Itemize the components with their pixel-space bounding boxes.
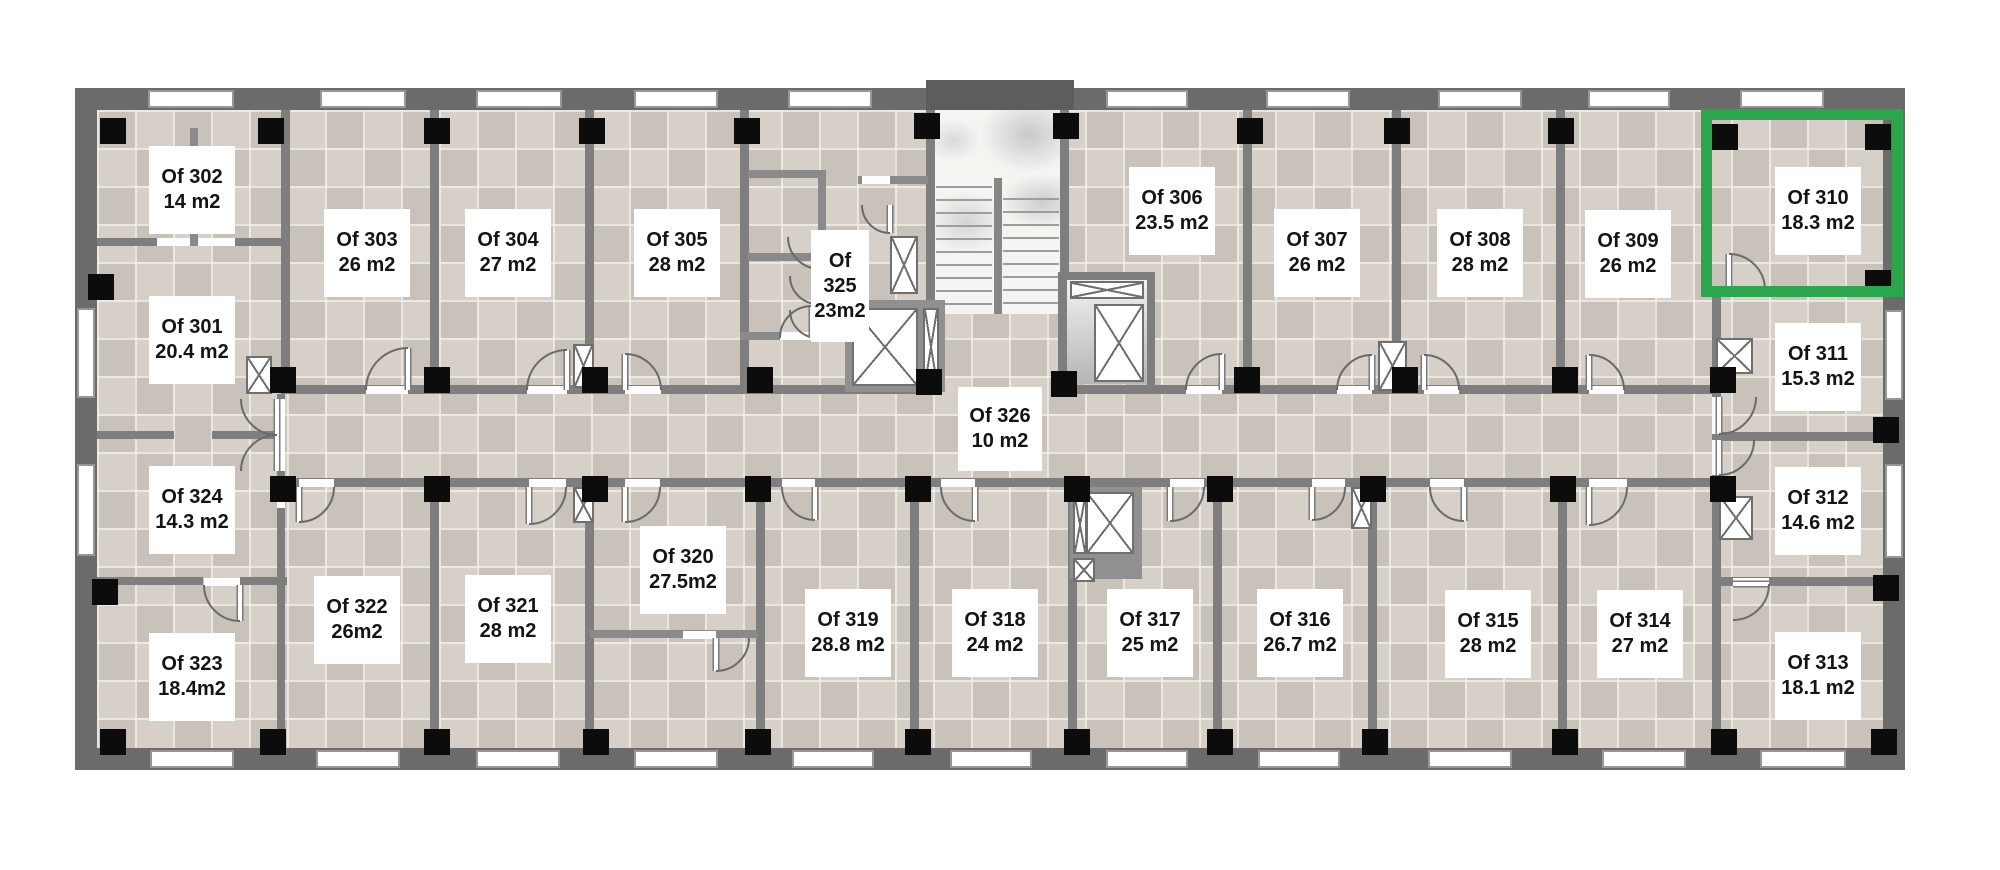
window	[634, 750, 718, 768]
stair-flight	[1003, 198, 1059, 312]
window	[1106, 90, 1188, 108]
wall	[277, 487, 285, 750]
door-opening	[780, 332, 812, 340]
room-label-304: Of 30427 m2	[465, 209, 551, 297]
wall	[756, 487, 765, 748]
room-label-text: 28.8 m2	[811, 633, 884, 658]
window	[950, 750, 1032, 768]
room-label-text: Of 309	[1597, 229, 1658, 254]
room-label-text: 26 m2	[339, 253, 396, 278]
shaft-duct	[890, 236, 918, 294]
room-label-315: Of 31528 m2	[1445, 590, 1531, 678]
room-label-text: 28 m2	[1460, 634, 1517, 659]
elevator	[1086, 492, 1134, 554]
room-label-text: Of 313	[1787, 651, 1848, 676]
door-opening	[1430, 479, 1464, 487]
door-opening	[1712, 440, 1721, 475]
room-label-text: 325	[823, 274, 856, 299]
column	[1207, 476, 1233, 502]
column	[916, 369, 942, 395]
room-label-text: 25 m2	[1122, 633, 1179, 658]
door-opening	[1337, 386, 1372, 394]
window	[150, 750, 234, 768]
column	[745, 476, 771, 502]
room-label-text: 14 m2	[164, 190, 221, 215]
door-opening	[527, 386, 567, 394]
window	[316, 750, 400, 768]
column	[734, 118, 760, 144]
column	[745, 729, 771, 755]
column	[905, 476, 931, 502]
window	[1428, 750, 1512, 768]
wall	[97, 238, 157, 246]
column	[1548, 118, 1574, 144]
column	[260, 729, 286, 755]
window	[476, 90, 562, 108]
wall	[430, 110, 439, 394]
door-opening	[1424, 386, 1459, 394]
door-opening	[277, 399, 285, 471]
elevator	[1073, 558, 1095, 582]
room-label-316: Of 31626.7 m2	[1257, 589, 1343, 677]
column	[582, 476, 608, 502]
room-label-text: 14.3 m2	[155, 510, 228, 535]
column	[1064, 476, 1090, 502]
window	[1106, 750, 1188, 768]
column	[905, 729, 931, 755]
room-label-326: Of 32610 m2	[958, 387, 1042, 471]
column	[583, 729, 609, 755]
window	[1885, 310, 1903, 400]
room-label-323: Of 32318.4m2	[149, 633, 235, 721]
door-opening	[782, 479, 815, 487]
door-opening	[1170, 479, 1204, 487]
room-label-text: Of 304	[477, 228, 538, 253]
room-label-text: Of 306	[1141, 186, 1202, 211]
door-opening	[625, 386, 661, 394]
room-label-text: 27.5m2	[649, 570, 717, 595]
wall	[1058, 272, 1067, 385]
column	[1710, 476, 1736, 502]
room-label-text: 28 m2	[1452, 253, 1509, 278]
room-label-text: 28 m2	[649, 253, 706, 278]
column	[1051, 371, 1077, 397]
wall	[281, 110, 290, 394]
room-label-text: Of 315	[1457, 609, 1518, 634]
stair-rail	[994, 178, 1002, 314]
partition-wall	[740, 332, 782, 340]
window	[1258, 750, 1340, 768]
room-label-text: Of 321	[477, 594, 538, 619]
window	[148, 90, 234, 108]
room-label-text: 26m2	[331, 620, 382, 645]
window	[320, 90, 406, 108]
column	[100, 729, 126, 755]
wall	[910, 487, 919, 748]
room-label-text: 26.7 m2	[1263, 633, 1336, 658]
window	[77, 464, 95, 556]
window	[1438, 90, 1522, 108]
column	[424, 367, 450, 393]
column	[424, 729, 450, 755]
room-label-322: Of 32226m2	[314, 576, 400, 664]
door-opening	[862, 176, 890, 184]
window	[1740, 90, 1824, 108]
wall	[97, 431, 174, 439]
window	[1885, 464, 1903, 558]
wall	[1213, 487, 1222, 748]
stair-flight	[936, 186, 992, 312]
window	[476, 750, 560, 768]
wall	[1243, 110, 1252, 394]
column	[424, 476, 450, 502]
room-label-text: 26 m2	[1289, 253, 1346, 278]
room-label-text: Of 323	[161, 652, 222, 677]
room-label-text: Of 314	[1609, 609, 1670, 634]
room-label-302: Of 30214 m2	[149, 146, 235, 234]
door-opening	[157, 238, 190, 246]
room-label-308: Of 30828 m2	[1437, 209, 1523, 297]
elevator	[1094, 304, 1144, 382]
door-opening	[1733, 578, 1769, 586]
wall	[740, 110, 749, 394]
room-label-text: 28 m2	[480, 619, 537, 644]
shaft-duct	[246, 356, 272, 394]
window	[792, 750, 874, 768]
column	[1360, 476, 1386, 502]
column	[258, 118, 284, 144]
floor-plan: Of 30120.4 m2Of 30214 m2Of 30326 m2Of 30…	[0, 0, 2000, 870]
window	[1760, 750, 1846, 768]
door-opening	[683, 631, 716, 639]
column	[1362, 729, 1388, 755]
partition-wall	[748, 170, 820, 178]
room-label-text: Of 307	[1286, 228, 1347, 253]
room-label-text: 26 m2	[1600, 254, 1657, 279]
room-label-text: Of	[829, 249, 851, 274]
door-opening	[1589, 479, 1627, 487]
column	[270, 367, 296, 393]
room-label-text: 15.3 m2	[1781, 367, 1854, 392]
window	[788, 90, 872, 108]
room-label-text: Of 322	[326, 595, 387, 620]
door-opening	[299, 479, 334, 487]
column	[1392, 367, 1418, 393]
door-opening	[1589, 386, 1624, 394]
selected-room-highlight[interactable]	[1701, 109, 1903, 297]
column	[270, 476, 296, 502]
column	[1053, 113, 1079, 139]
room-label-text: Of 312	[1787, 486, 1848, 511]
partition-wall	[748, 253, 820, 261]
room-label-320: Of 32027.5m2	[640, 526, 726, 614]
wall	[235, 238, 281, 246]
wall	[277, 478, 1712, 487]
column	[582, 367, 608, 393]
door-opening	[529, 479, 566, 487]
wall	[1558, 487, 1567, 748]
room-label-307: Of 30726 m2	[1274, 209, 1360, 297]
room-label-text: Of 324	[161, 485, 222, 510]
room-label-text: Of 305	[646, 228, 707, 253]
column	[1384, 118, 1410, 144]
door-opening	[1312, 479, 1345, 487]
window	[634, 90, 718, 108]
column	[92, 579, 118, 605]
room-label-text: Of 303	[336, 228, 397, 253]
room-label-text: Of 311	[1788, 342, 1848, 367]
elevator	[1073, 496, 1087, 554]
room-label-text: Of 308	[1449, 228, 1510, 253]
door-opening	[625, 479, 660, 487]
column	[1237, 118, 1263, 144]
window	[1266, 90, 1350, 108]
wall	[1712, 432, 1883, 441]
room-label-319: Of 31928.8 m2	[805, 589, 891, 677]
column	[1552, 367, 1578, 393]
column	[1552, 729, 1578, 755]
room-label-306: Of 30623.5 m2	[1129, 167, 1215, 255]
room-label-text: 27 m2	[480, 253, 537, 278]
column	[1064, 729, 1090, 755]
column	[1871, 729, 1897, 755]
room-label-325: Of32523m2	[811, 230, 869, 342]
room-label-text: 27 m2	[1612, 634, 1669, 659]
wall	[1058, 272, 1155, 280]
room-label-311: Of 31115.3 m2	[1775, 323, 1861, 411]
room-label-312: Of 31214.6 m2	[1775, 467, 1861, 555]
room-label-text: Of 302	[161, 165, 222, 190]
room-label-text: Of 318	[964, 608, 1025, 633]
room-label-321: Of 32128 m2	[465, 575, 551, 663]
door-opening	[941, 479, 975, 487]
room-label-305: Of 30528 m2	[634, 209, 720, 297]
wall	[1147, 272, 1155, 385]
shaft-duct	[1719, 496, 1753, 540]
column	[747, 367, 773, 393]
room-label-309: Of 30926 m2	[1585, 210, 1671, 298]
column	[1711, 729, 1737, 755]
room-label-text: Of 301	[161, 315, 222, 340]
window	[77, 308, 95, 398]
wall	[585, 487, 594, 748]
room-label-text: Of 320	[652, 545, 713, 570]
stairwell-top-slab	[926, 80, 1074, 110]
column	[1710, 367, 1736, 393]
wall	[240, 577, 287, 585]
room-label-318: Of 31824 m2	[952, 589, 1038, 677]
partition-wall	[590, 630, 758, 638]
window	[1602, 750, 1686, 768]
room-label-text: 10 m2	[972, 429, 1029, 454]
room-label-324: Of 32414.3 m2	[149, 466, 235, 554]
room-label-text: Of 326	[969, 404, 1030, 429]
room-label-text: 23m2	[814, 299, 865, 324]
room-label-314: Of 31427 m2	[1597, 590, 1683, 678]
wall	[430, 487, 439, 748]
door-opening	[198, 238, 235, 246]
room-label-303: Of 30326 m2	[324, 209, 410, 297]
wall	[1556, 110, 1565, 394]
room-label-text: 24 m2	[967, 633, 1024, 658]
column	[579, 118, 605, 144]
column	[100, 118, 126, 144]
window	[1588, 90, 1670, 108]
room-label-text: Of 319	[817, 608, 878, 633]
room-label-text: 18.4m2	[158, 677, 226, 702]
room-label-text: 14.6 m2	[1781, 511, 1854, 536]
room-label-text: Of 317	[1119, 608, 1180, 633]
room-label-text: 23.5 m2	[1135, 211, 1208, 236]
door-opening	[366, 386, 408, 394]
column	[424, 118, 450, 144]
column	[1234, 367, 1260, 393]
elevator	[1070, 281, 1144, 299]
room-label-313: Of 31318.1 m2	[1775, 632, 1861, 720]
room-label-text: 18.1 m2	[1781, 676, 1854, 701]
exterior-wall	[75, 88, 97, 770]
room-label-text: 20.4 m2	[155, 340, 228, 365]
door-opening	[1712, 397, 1721, 434]
wall	[212, 431, 278, 439]
column	[1550, 476, 1576, 502]
column	[1207, 729, 1233, 755]
room-label-301: Of 30120.4 m2	[149, 296, 235, 384]
column	[914, 113, 940, 139]
column	[88, 274, 114, 300]
door-opening	[1186, 386, 1222, 394]
door-opening	[204, 578, 240, 586]
column	[1873, 575, 1899, 601]
room-label-317: Of 31725 m2	[1107, 589, 1193, 677]
room-label-text: Of 316	[1269, 608, 1330, 633]
column	[1873, 417, 1899, 443]
